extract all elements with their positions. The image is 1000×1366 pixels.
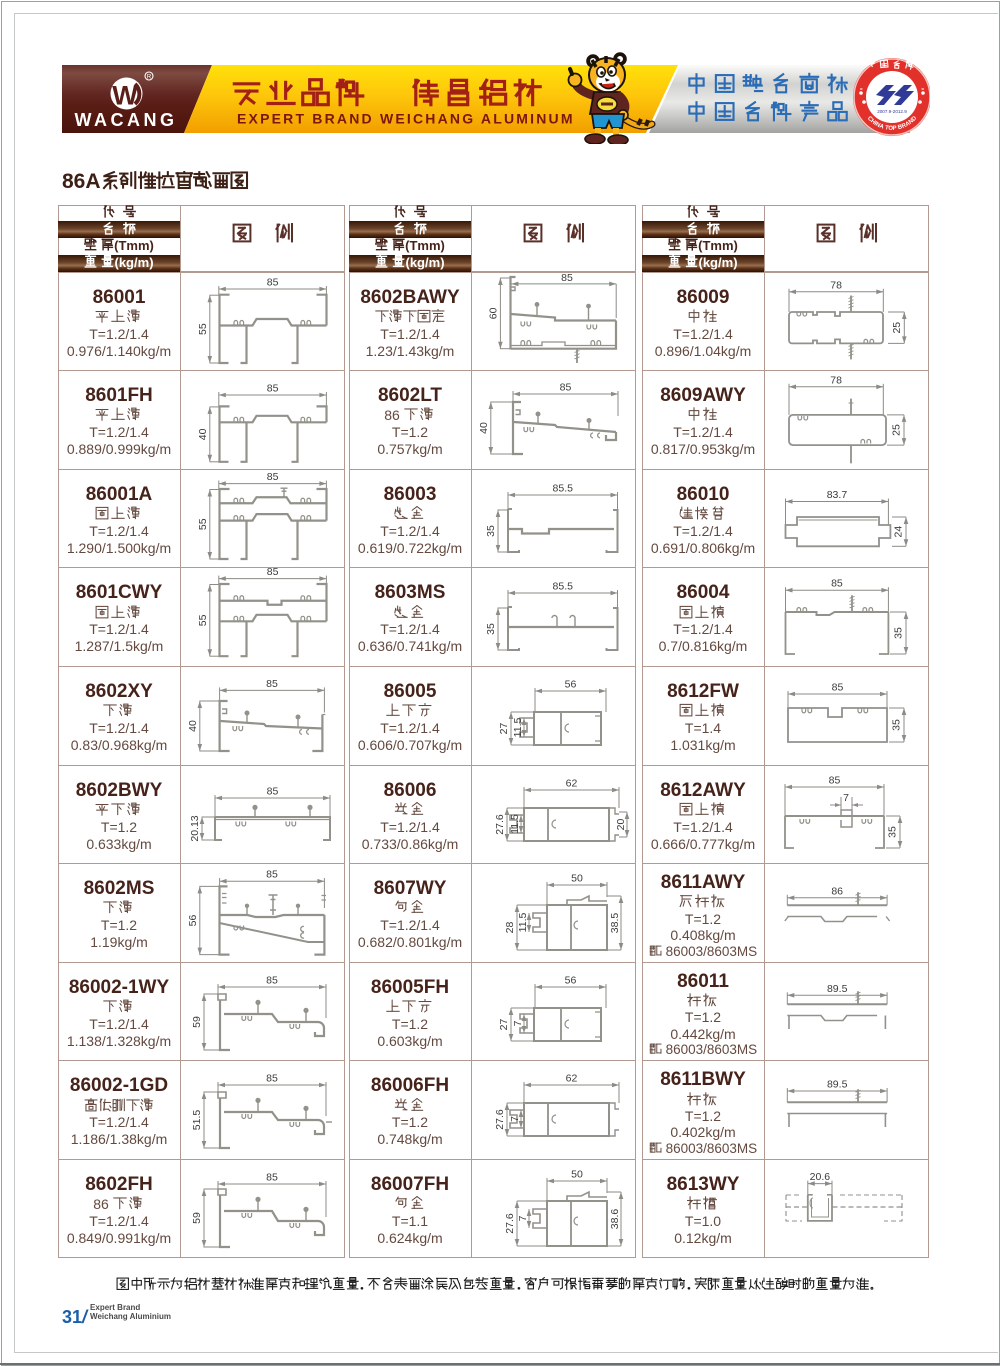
- svg-text:11.5: 11.5: [512, 718, 524, 738]
- svg-text:20.13: 20.13: [189, 815, 201, 841]
- svg-text:35: 35: [893, 627, 905, 639]
- svg-text:38.6: 38.6: [609, 1209, 621, 1230]
- svg-text:38.5: 38.5: [609, 913, 621, 934]
- svg-text:78: 78: [830, 279, 842, 291]
- svg-text:85: 85: [831, 578, 843, 590]
- svg-text:20.6: 20.6: [810, 1171, 831, 1183]
- svg-text:85: 85: [266, 678, 278, 690]
- svg-text:78: 78: [830, 374, 842, 386]
- svg-text:85: 85: [829, 774, 841, 786]
- svg-text:25: 25: [891, 424, 903, 436]
- svg-text:56: 56: [565, 679, 577, 691]
- svg-text:20: 20: [615, 818, 627, 830]
- svg-text:27.6: 27.6: [504, 1213, 516, 1234]
- svg-text:51.5: 51.5: [191, 1110, 203, 1131]
- svg-text:WACANG: WACANG: [75, 110, 178, 130]
- svg-text:85: 85: [266, 1172, 278, 1184]
- svg-text:55: 55: [197, 518, 209, 530]
- svg-text:85.5: 85.5: [553, 581, 574, 593]
- svg-text:27: 27: [498, 723, 510, 735]
- svg-text:50: 50: [571, 1169, 583, 1181]
- svg-text:7: 7: [509, 1116, 521, 1122]
- svg-text:11.5: 11.5: [517, 913, 529, 933]
- svg-text:85: 85: [266, 1073, 278, 1085]
- svg-text:85: 85: [267, 471, 279, 483]
- svg-text:EXPERT BRAND WEICHANG ALUMINUM: EXPERT BRAND WEICHANG ALUMINUM: [237, 111, 575, 127]
- svg-text:35: 35: [485, 623, 497, 635]
- svg-text:24: 24: [893, 525, 905, 537]
- svg-text:27.6: 27.6: [494, 814, 506, 835]
- svg-text:55: 55: [197, 323, 209, 335]
- svg-text:59: 59: [191, 1212, 203, 1224]
- svg-text:40: 40: [187, 720, 199, 732]
- svg-text:62: 62: [566, 1073, 578, 1085]
- svg-text:62: 62: [566, 777, 578, 789]
- svg-text:35: 35: [887, 826, 899, 838]
- svg-text:28: 28: [504, 922, 516, 934]
- svg-text:59: 59: [191, 1016, 203, 1028]
- svg-text:85: 85: [561, 272, 573, 284]
- svg-text:40: 40: [478, 422, 490, 434]
- svg-text:55: 55: [197, 615, 209, 627]
- svg-text:35: 35: [485, 525, 497, 537]
- svg-text:60: 60: [487, 307, 499, 319]
- svg-text:7: 7: [517, 1215, 529, 1221]
- svg-text:56: 56: [187, 915, 199, 927]
- svg-text:7: 7: [843, 792, 849, 804]
- svg-text:11.5: 11.5: [509, 814, 521, 834]
- svg-text:85: 85: [266, 869, 278, 881]
- svg-text:89.5: 89.5: [827, 983, 848, 995]
- svg-text:85: 85: [267, 785, 279, 797]
- svg-text:85: 85: [266, 974, 278, 986]
- svg-text:89.5: 89.5: [827, 1079, 848, 1091]
- svg-text:85: 85: [267, 276, 279, 288]
- svg-text:25: 25: [891, 321, 903, 333]
- svg-text:27: 27: [498, 1018, 510, 1030]
- svg-text:85: 85: [267, 383, 279, 395]
- svg-text:40: 40: [197, 429, 209, 441]
- svg-text:27.6: 27.6: [494, 1110, 506, 1131]
- svg-text:86: 86: [831, 885, 843, 897]
- svg-text:56: 56: [565, 974, 577, 986]
- svg-text:85: 85: [267, 567, 279, 578]
- svg-text:85: 85: [832, 682, 844, 694]
- svg-text:85: 85: [560, 382, 572, 394]
- svg-text:83.7: 83.7: [827, 489, 848, 501]
- svg-text:R: R: [147, 75, 152, 81]
- svg-text:7: 7: [512, 1020, 524, 1026]
- svg-text:35: 35: [891, 719, 903, 731]
- svg-text:85.5: 85.5: [553, 482, 574, 494]
- svg-text:50: 50: [571, 873, 583, 885]
- svg-text:2007.9-2012.9: 2007.9-2012.9: [877, 109, 907, 114]
